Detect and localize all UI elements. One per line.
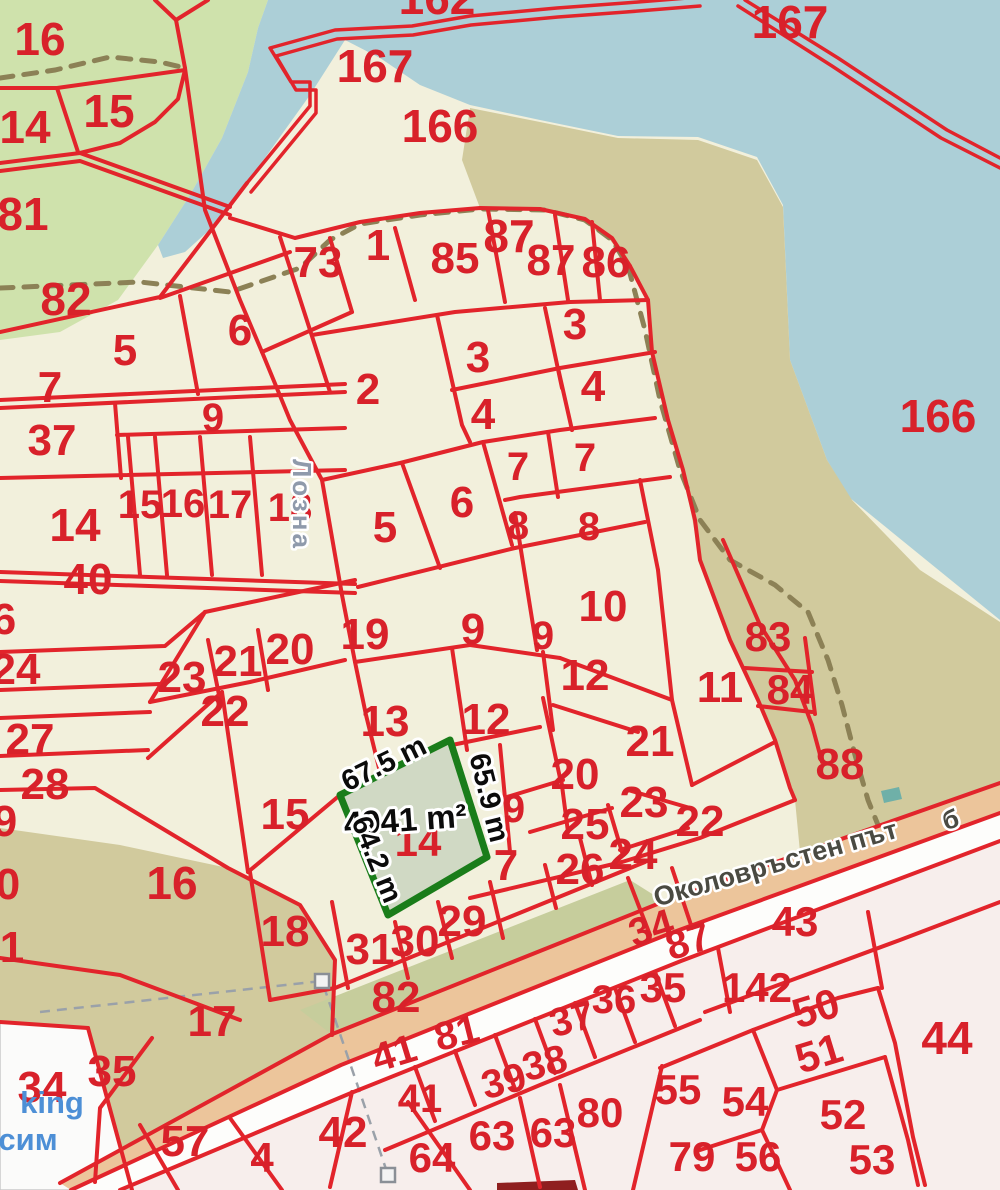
parcel-label: 57 <box>161 1117 210 1166</box>
parcel-label: 12 <box>561 651 610 700</box>
parcel-label: 22 <box>201 687 250 736</box>
parcel-label: 142 <box>722 964 792 1011</box>
parcel-label: 15 <box>261 790 310 839</box>
parcel-label: 17 <box>208 483 253 527</box>
parcel-label: 21 <box>214 637 263 686</box>
parcel-label: 24 <box>0 645 41 694</box>
parcel-label: 88 <box>816 740 865 789</box>
parcel-label: 15 <box>118 483 163 527</box>
parcel-label: 20 <box>551 750 600 799</box>
parcel-label: 22 <box>676 797 725 846</box>
parcel-label: 73 <box>294 238 343 287</box>
parcel-label: 86 <box>582 238 631 287</box>
parcel-label: 31 <box>346 925 395 974</box>
parcel-label: 167 <box>752 0 829 48</box>
parcel-label: 16 <box>146 857 197 909</box>
parcel-label: 82 <box>40 273 91 325</box>
parcel-label: 56 <box>735 1133 782 1180</box>
poi-label: сим <box>0 1122 58 1157</box>
parcel-label: 85 <box>431 234 480 283</box>
parcel-label: 9 <box>0 797 17 846</box>
parcel-label: 166 <box>900 390 977 442</box>
parcel-label: 9 <box>461 605 485 654</box>
parcel-label: 0 <box>0 860 20 909</box>
parcel-label: 8 <box>507 504 529 548</box>
parcel-label: 1 <box>366 221 390 270</box>
parcel-label: 53 <box>849 1136 896 1183</box>
parcel-label: 42 <box>319 1108 368 1157</box>
poi-label: king <box>20 1085 84 1120</box>
parcel-label: 9 <box>202 396 224 440</box>
parcel-label: 16 <box>14 13 65 65</box>
parcel-label: 41 <box>398 1077 443 1121</box>
parcel-label: 14 <box>0 101 51 153</box>
parcel-label: 10 <box>579 582 628 631</box>
parcel-label: 2 <box>356 365 380 414</box>
parcel-label: 20 <box>266 625 315 674</box>
parcel-label: 52 <box>820 1091 867 1138</box>
measure-handle[interactable] <box>381 1168 395 1182</box>
parcel-label: 79 <box>669 1133 716 1180</box>
parcel-label: 3 <box>466 333 490 382</box>
parcel-label: 14 <box>49 499 101 551</box>
parcel-label: 15 <box>83 85 134 137</box>
parcel-label: 63 <box>530 1109 577 1156</box>
parcel-label: 6 <box>450 478 474 527</box>
parcel-label: 23 <box>158 653 207 702</box>
parcel-label: 23 <box>620 778 669 827</box>
parcel-label: 84 <box>767 666 814 713</box>
parcel-label: 29 <box>438 897 487 946</box>
parcel-label: 81 <box>0 188 49 240</box>
parcel-label: 7 <box>574 436 596 480</box>
parcel-label: 87 <box>527 236 576 285</box>
parcel-label: 162 <box>399 0 476 24</box>
parcel-label: 82 <box>372 973 421 1022</box>
parcel-label: 7 <box>494 841 518 890</box>
parcel-label: 27 <box>6 715 55 764</box>
parcel-label: 12 <box>462 695 511 744</box>
parcel-label: 166 <box>402 100 479 152</box>
parcel-label: 5 <box>113 326 137 375</box>
parcel-label: 24 <box>609 830 658 879</box>
parcel-label: 28 <box>21 760 70 809</box>
parcel-label: 18 <box>261 907 310 956</box>
parcel-label: 80 <box>577 1089 624 1136</box>
parcel-label: 35 <box>640 964 687 1011</box>
parcel-label: 11 <box>697 663 744 712</box>
parcel-label: 5 <box>373 503 397 552</box>
parcel-label: 37 <box>28 416 77 465</box>
parcel-label: 55 <box>655 1066 702 1113</box>
parcel-label: 30 <box>391 917 440 966</box>
parcel-label: 83 <box>745 613 792 660</box>
parcel-label: 4 <box>581 362 606 411</box>
parcel-label: 7 <box>38 363 62 412</box>
parcel-label: 1 <box>0 923 24 972</box>
parcel-label: 35 <box>88 1047 137 1096</box>
parcel-label: 40 <box>64 555 113 604</box>
parcel-label: 17 <box>188 997 237 1046</box>
parcel-label: 63 <box>469 1112 516 1159</box>
parcel-label: 26 <box>556 845 605 894</box>
parcel-label: 4 <box>250 1134 274 1181</box>
parcel-label: 25 <box>561 800 610 849</box>
parcel-label: 43 <box>772 898 819 945</box>
cadastral-map-canvas: 1615148182162167167166166731858787865679… <box>0 0 1000 1190</box>
parcel-label: 3 <box>563 300 587 349</box>
parcel-label: 9 <box>532 614 554 658</box>
parcel-label: 64 <box>409 1134 456 1181</box>
measure-handle[interactable] <box>315 974 329 988</box>
parcel-label: 19 <box>341 610 390 659</box>
parcel-label: 7 <box>507 445 529 489</box>
parcel-label: 6 <box>228 306 252 355</box>
parcel-label: 16 <box>161 482 206 526</box>
parcel-label: 4 <box>471 390 496 439</box>
parcel-label: 8 <box>578 505 600 549</box>
parcel-label: 167 <box>337 40 414 92</box>
parcel-label: 54 <box>722 1078 769 1125</box>
parcel-label: 21 <box>626 717 675 766</box>
parcel-label: 6 <box>0 595 16 644</box>
parcel-label: 36 <box>592 978 637 1022</box>
parcel-label: 44 <box>921 1012 973 1064</box>
map-viewport[interactable]: cadastral parcel map 1615148182162167167… <box>0 0 1000 1190</box>
stream-name-label: Лозна <box>287 459 317 551</box>
